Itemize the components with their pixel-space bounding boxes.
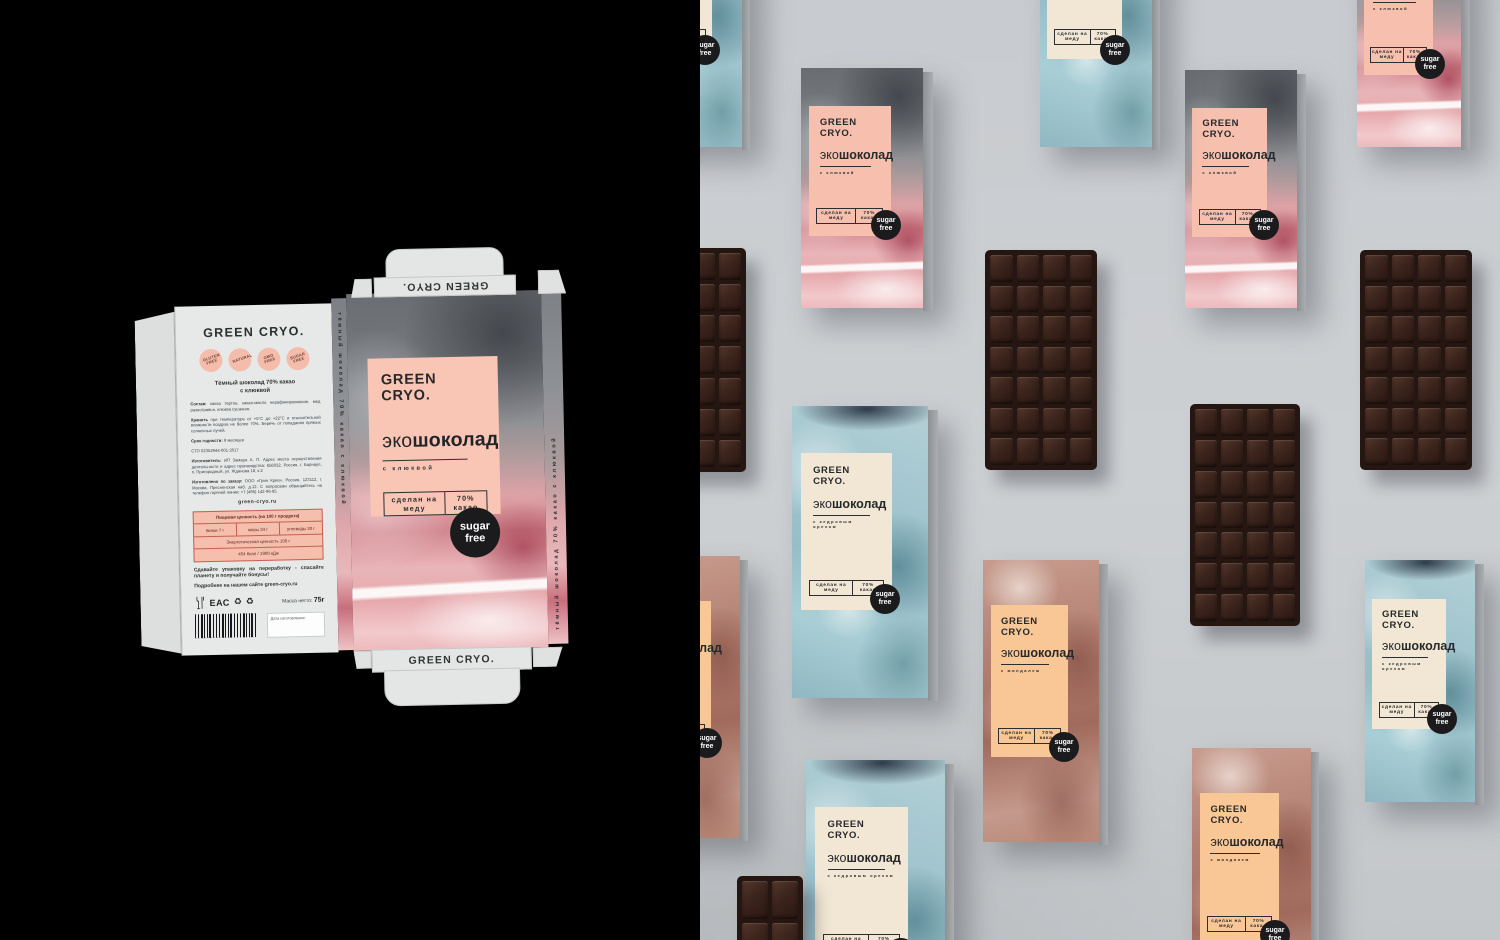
chocolate-chunk	[1195, 471, 1217, 498]
net-weight: Масса нетто: 75г	[282, 597, 324, 605]
sugar-free-dot: sugar free	[450, 507, 501, 558]
dust-flap	[351, 279, 372, 298]
sugar-free-dot: sugar free	[700, 35, 720, 65]
dust-flap	[354, 651, 372, 669]
chocolate-chunk	[1221, 502, 1243, 529]
chocolate-chunk	[1017, 408, 1040, 435]
barcode-row: Дата изготовления:	[195, 612, 325, 640]
package-pine-nut: GREEN CRYO. экошоколад с кедровым орехом…	[1365, 560, 1484, 802]
package-side-face	[1099, 564, 1108, 845]
chocolate-chunk	[1365, 316, 1388, 343]
eac-mark: ЕАС	[209, 597, 229, 607]
top-flap: GREEN CRYO.	[374, 275, 516, 298]
gluten-free-badge: GLUTEN FREE	[199, 349, 222, 372]
chocolate-chunk	[1273, 471, 1295, 498]
recycle-note: Сдавайте упаковку на переработку - спаса…	[194, 564, 324, 580]
chocolate-chunk	[1392, 408, 1415, 435]
divider	[1210, 853, 1260, 854]
divider	[1202, 166, 1249, 167]
more-info-note: Подробнее на нашем сайте green-cryo.ru	[194, 581, 324, 590]
flap-brand: GREEN CRYO.	[402, 279, 489, 293]
chocolate-chunk	[742, 923, 768, 940]
chocolate-chunk	[700, 378, 715, 405]
composition-text: Состав: какао тертое, какао-масло нерафи…	[190, 399, 320, 413]
divider	[1382, 657, 1428, 658]
chocolate-chunk	[1221, 563, 1243, 590]
chocolate-chunk	[1418, 408, 1441, 435]
chocolate-chunk	[1221, 532, 1243, 559]
sugar-free-dot: sugar free	[1260, 920, 1290, 940]
chocolate-chunk	[1195, 502, 1217, 529]
sugar-free-badge: SUGAR FREE	[286, 347, 309, 370]
package-side-face	[740, 560, 748, 841]
chocolate-chunk	[1221, 409, 1243, 436]
chocolate-chunk	[1017, 255, 1040, 282]
energy-value: 454 Ккал / 1900 кДж	[194, 546, 322, 561]
divider	[813, 515, 870, 516]
chocolate-chunk	[1017, 286, 1040, 313]
package-front-face: GREEN CRYO. экошоколад с миндалем сделан…	[983, 560, 1099, 842]
chocolate-chunk	[1043, 316, 1066, 343]
chocolate-chunk	[1070, 438, 1093, 465]
chocolate-chunk	[1418, 286, 1441, 313]
chocolate-chunk	[700, 315, 715, 342]
package-pine-nut-cut: GREEN CRYO. экошоколад с кедровым орехом…	[700, 0, 750, 147]
marks-row: ЕАС ♻ ♻ Масса нетто: 75г	[194, 594, 324, 610]
package-front-face: GREEN CRYO. экошоколад с клюквой сделан …	[1185, 70, 1297, 308]
chocolate-chunk	[1273, 440, 1295, 467]
dust-flap	[538, 270, 566, 295]
chocolate-chunk	[1043, 347, 1066, 374]
divider	[383, 459, 468, 462]
chocolate-chunk	[1043, 255, 1066, 282]
flavor-label: с клюквой	[383, 464, 487, 472]
manufacture-date-box: Дата изготовления:	[267, 612, 326, 638]
box-dieline: GREEN CRYO. GLUTEN FREE NATURAL GMO FREE…	[133, 246, 575, 717]
package-front-face: GREEN CRYO. экошоколад с клюквой сделан …	[801, 68, 923, 308]
chocolate-chunk	[1445, 347, 1468, 374]
package-cranberry: GREEN CRYO. экошоколад с клюквой сделан …	[1185, 70, 1306, 308]
chocolate-chunk	[1445, 408, 1468, 435]
recycle-icon: ♻	[234, 598, 242, 607]
product-title: Тёмный шоколад 70% какао с клюквой	[190, 378, 320, 398]
chocolate-chunk	[1392, 316, 1415, 343]
chocolate-chunk	[1221, 440, 1243, 467]
sugar-free-dot: sugar free	[700, 728, 722, 758]
package-front-face: GREEN CRYO. экошоколад с кедровым орехом…	[806, 760, 945, 940]
chocolate-chunk	[1365, 438, 1388, 465]
package-side-face	[742, 0, 750, 150]
package-side-face	[923, 72, 933, 311]
front-label: GREEN CRYO. экошоколад с клюквой сделан …	[367, 356, 500, 517]
chocolate-chunk	[1392, 255, 1415, 282]
chocolate-chunk	[990, 316, 1013, 343]
green-dot-icon: ♻	[246, 597, 254, 606]
package-front-face: GREEN CRYO. экошоколад с клюквой сделан …	[1357, 0, 1461, 147]
chocolate-chunk	[700, 409, 715, 436]
package-front-face: GREEN CRYO. экошоколад с кедровым орехом…	[700, 0, 742, 147]
package-pine-nut-cut: GREEN CRYO. экошоколад с кедровым орехом…	[806, 760, 954, 940]
chocolate-chunk	[772, 923, 798, 940]
chocolate-chunk	[1195, 440, 1217, 467]
chocolate-chunk	[1043, 438, 1066, 465]
package-side-face	[1297, 74, 1306, 311]
chocolate-chunk	[990, 438, 1013, 465]
sugar-free-dot: sugar free	[1049, 732, 1079, 762]
package-side-face	[945, 764, 954, 940]
nutrition-table: Пищевая ценность (на 100 г продукта) бел…	[193, 509, 324, 562]
brand-logo: GREEN CRYO.	[381, 370, 486, 404]
chocolate-chunk	[742, 881, 768, 919]
chocolate-chunk	[700, 440, 715, 467]
package-cranberry: GREEN CRYO. экошоколад с клюквой сделан …	[801, 68, 933, 308]
website-url: green-cryo.ru	[192, 498, 322, 507]
chocolate-chunk	[1392, 347, 1415, 374]
package-front-face: GREEN CRYO. экошоколад с миндалем сделан…	[700, 556, 740, 838]
chocolate-chunk	[1017, 347, 1040, 374]
chocolate-chunk	[1017, 316, 1040, 343]
brand-logo: GREEN CRYO.	[189, 324, 319, 341]
chocolate-chunk	[1247, 409, 1269, 436]
tableware-icon	[194, 596, 205, 609]
chocolate-chunk	[1418, 438, 1441, 465]
chocolate-chunk	[1195, 563, 1217, 590]
chocolate-chunk	[1247, 563, 1269, 590]
package-label: GREEN CRYO. экошоколад с миндалем сделан…	[1200, 793, 1280, 940]
chocolate-bar-cut	[700, 248, 746, 472]
chocolate-chunk	[1445, 286, 1468, 313]
chocolate-chunk	[700, 253, 715, 280]
chocolate-chunk	[1392, 377, 1415, 404]
chocolate-chunk	[1247, 471, 1269, 498]
chocolate-chunk	[1070, 255, 1093, 282]
chocolate-chunk	[700, 346, 715, 373]
chocolate-chunk	[1418, 347, 1441, 374]
barcode	[195, 613, 257, 638]
chocolate-chunk	[990, 377, 1013, 404]
chocolate-chunk	[1445, 316, 1468, 343]
chocolate-chunk	[1273, 532, 1295, 559]
design-panel: GREEN CRYO. GLUTEN FREE NATURAL GMO FREE…	[0, 0, 700, 940]
chocolate-chunk	[1070, 377, 1093, 404]
gmo-free-badge: GMO FREE	[257, 348, 280, 371]
chocolate-chunk	[719, 346, 742, 373]
chocolate-chunk	[1418, 255, 1441, 282]
chocolate-chunk	[990, 408, 1013, 435]
chocolate-chunk	[1365, 347, 1388, 374]
box-back-panel: GREEN CRYO. GLUTEN FREE NATURAL GMO FREE…	[174, 303, 338, 655]
chocolate-chunk	[1418, 377, 1441, 404]
chocolate-chunk	[1365, 377, 1388, 404]
certification-badges: GLUTEN FREE NATURAL GMO FREE SUGAR FREE	[189, 347, 319, 373]
tuck-flap-bottom	[384, 668, 521, 707]
chocolate-chunk	[1418, 316, 1441, 343]
sto-text: СТО 02352944-001-2017	[191, 446, 321, 454]
package-almond-cut: GREEN CRYO. экошоколад с миндалем сделан…	[1192, 748, 1319, 940]
spine-text: тёмный шоколад 70% какао с клюквой	[551, 436, 561, 630]
chocolate-chunk	[1247, 532, 1269, 559]
chocolate-chunk	[1070, 408, 1093, 435]
claims-box: сделан на меду70% какао	[823, 934, 899, 940]
package-front-face: GREEN CRYO. экошоколад с миндалем сделан…	[1192, 748, 1311, 940]
package-front-face: GREEN CRYO. экошоколад с кедровым орехом…	[1365, 560, 1475, 802]
divider	[820, 166, 871, 167]
chocolate-chunk	[1392, 286, 1415, 313]
package-label: GREEN CRYO. экошоколад с кедровым орехом…	[815, 807, 908, 940]
chocolate-chunk	[1273, 409, 1295, 436]
chocolate-chunk	[1221, 594, 1243, 621]
package-side-face	[928, 410, 938, 701]
chocolate-chunk	[719, 284, 742, 311]
spine-text: тёмный шоколад 70% какао с клюквой	[336, 312, 346, 506]
sugar-free-dot: sugar free	[1100, 35, 1130, 65]
sugar-free-dot: sugar free	[1249, 210, 1279, 240]
package-almond-cut: GREEN CRYO. экошоколад с миндалем сделан…	[700, 556, 748, 838]
chocolate-chunk	[1445, 255, 1468, 282]
chocolate-chunk	[1365, 408, 1388, 435]
storage-text: Хранить при температуре от +5°С до +22°С…	[191, 415, 321, 434]
dust-flap	[533, 647, 563, 668]
chocolate-chunk	[1392, 438, 1415, 465]
chocolate-chunk	[1195, 532, 1217, 559]
chocolate-chunk	[990, 286, 1013, 313]
chocolate-chunk	[772, 881, 798, 919]
chocolate-chunk	[1017, 377, 1040, 404]
chocolate-chunk	[719, 253, 742, 280]
chocolate-chunk	[1247, 502, 1269, 529]
chocolate-chunk	[1043, 408, 1066, 435]
chocolate-chunk	[990, 255, 1013, 282]
package-side-face	[1311, 752, 1319, 940]
chocolate-chunk	[719, 440, 742, 467]
sugar-free-dot: sugar free	[1427, 704, 1457, 734]
chocolate-bar	[1190, 404, 1300, 626]
chocolate-bar	[985, 250, 1097, 470]
sugar-free-dot: sugar free	[1415, 49, 1445, 79]
package-cranberry-cut: GREEN CRYO. экошоколад с клюквой сделан …	[1357, 0, 1470, 147]
package-pine-nut: GREEN CRYO. экошоколад с кедровым орехом…	[792, 406, 938, 698]
chocolate-chunk	[1273, 502, 1295, 529]
chocolate-chunk	[1445, 438, 1468, 465]
chocolate-chunk	[719, 409, 742, 436]
chocolate-chunk	[1017, 438, 1040, 465]
chocolate-chunk	[719, 315, 742, 342]
chocolate-chunk	[990, 347, 1013, 374]
chocolate-bar-cut	[737, 876, 803, 940]
natural-badge: NATURAL	[228, 348, 251, 371]
package-almond: GREEN CRYO. экошоколад с миндалем сделан…	[983, 560, 1108, 842]
chocolate-chunk	[719, 378, 742, 405]
package-front-face: GREEN CRYO. экошоколад с кедровым орехом…	[792, 406, 928, 698]
chocolate-chunk	[1445, 377, 1468, 404]
product-name: экошоколад	[382, 428, 486, 453]
shelf-life-text: Срок годности: 9 месяцев	[191, 436, 321, 444]
divider	[828, 869, 886, 870]
chocolate-chunk	[1221, 471, 1243, 498]
chocolate-chunk	[1273, 594, 1295, 621]
chocolate-chunk	[1043, 377, 1066, 404]
chocolate-chunk	[1365, 286, 1388, 313]
chocolate-chunk	[1273, 563, 1295, 590]
chocolate-chunk	[1195, 594, 1217, 621]
package-side-face	[1475, 564, 1484, 805]
sugar-free-dot: sugar free	[871, 210, 901, 240]
chocolate-bar	[1360, 250, 1472, 470]
chocolate-chunk	[700, 284, 715, 311]
photo-panel: GREEN CRYO. экошоколад с клюквой сделан …	[700, 0, 1500, 940]
chocolate-chunk	[1070, 347, 1093, 374]
divider	[1001, 664, 1049, 665]
chocolate-chunk	[1247, 594, 1269, 621]
chocolate-chunk	[1043, 286, 1066, 313]
package-side-face	[1461, 0, 1470, 150]
package-side-face	[1152, 0, 1160, 150]
box-front-panel: GREEN CRYO. экошоколад с клюквой сделан …	[346, 290, 548, 651]
chocolate-chunk	[1195, 409, 1217, 436]
chocolate-chunk	[1247, 440, 1269, 467]
flap-brand: GREEN CRYO.	[408, 653, 495, 667]
chocolate-chunk	[1070, 316, 1093, 343]
chocolate-chunk	[1365, 255, 1388, 282]
divider	[1373, 2, 1416, 3]
ordered-by-text: Изготовлено по заказу: ООО «Грин Крио», …	[192, 477, 322, 496]
manufacturer-text: Изготовитель: ИП Замара А. П. Адрес мест…	[191, 456, 321, 475]
sugar-free-dot: sugar free	[870, 584, 900, 614]
chocolate-chunk	[1070, 286, 1093, 313]
package-front-face: GREEN CRYO. экошоколад с кедровым орехом…	[1040, 0, 1152, 147]
package-pine-nut-cut: GREEN CRYO. экошоколад с кедровым орехом…	[1040, 0, 1160, 147]
